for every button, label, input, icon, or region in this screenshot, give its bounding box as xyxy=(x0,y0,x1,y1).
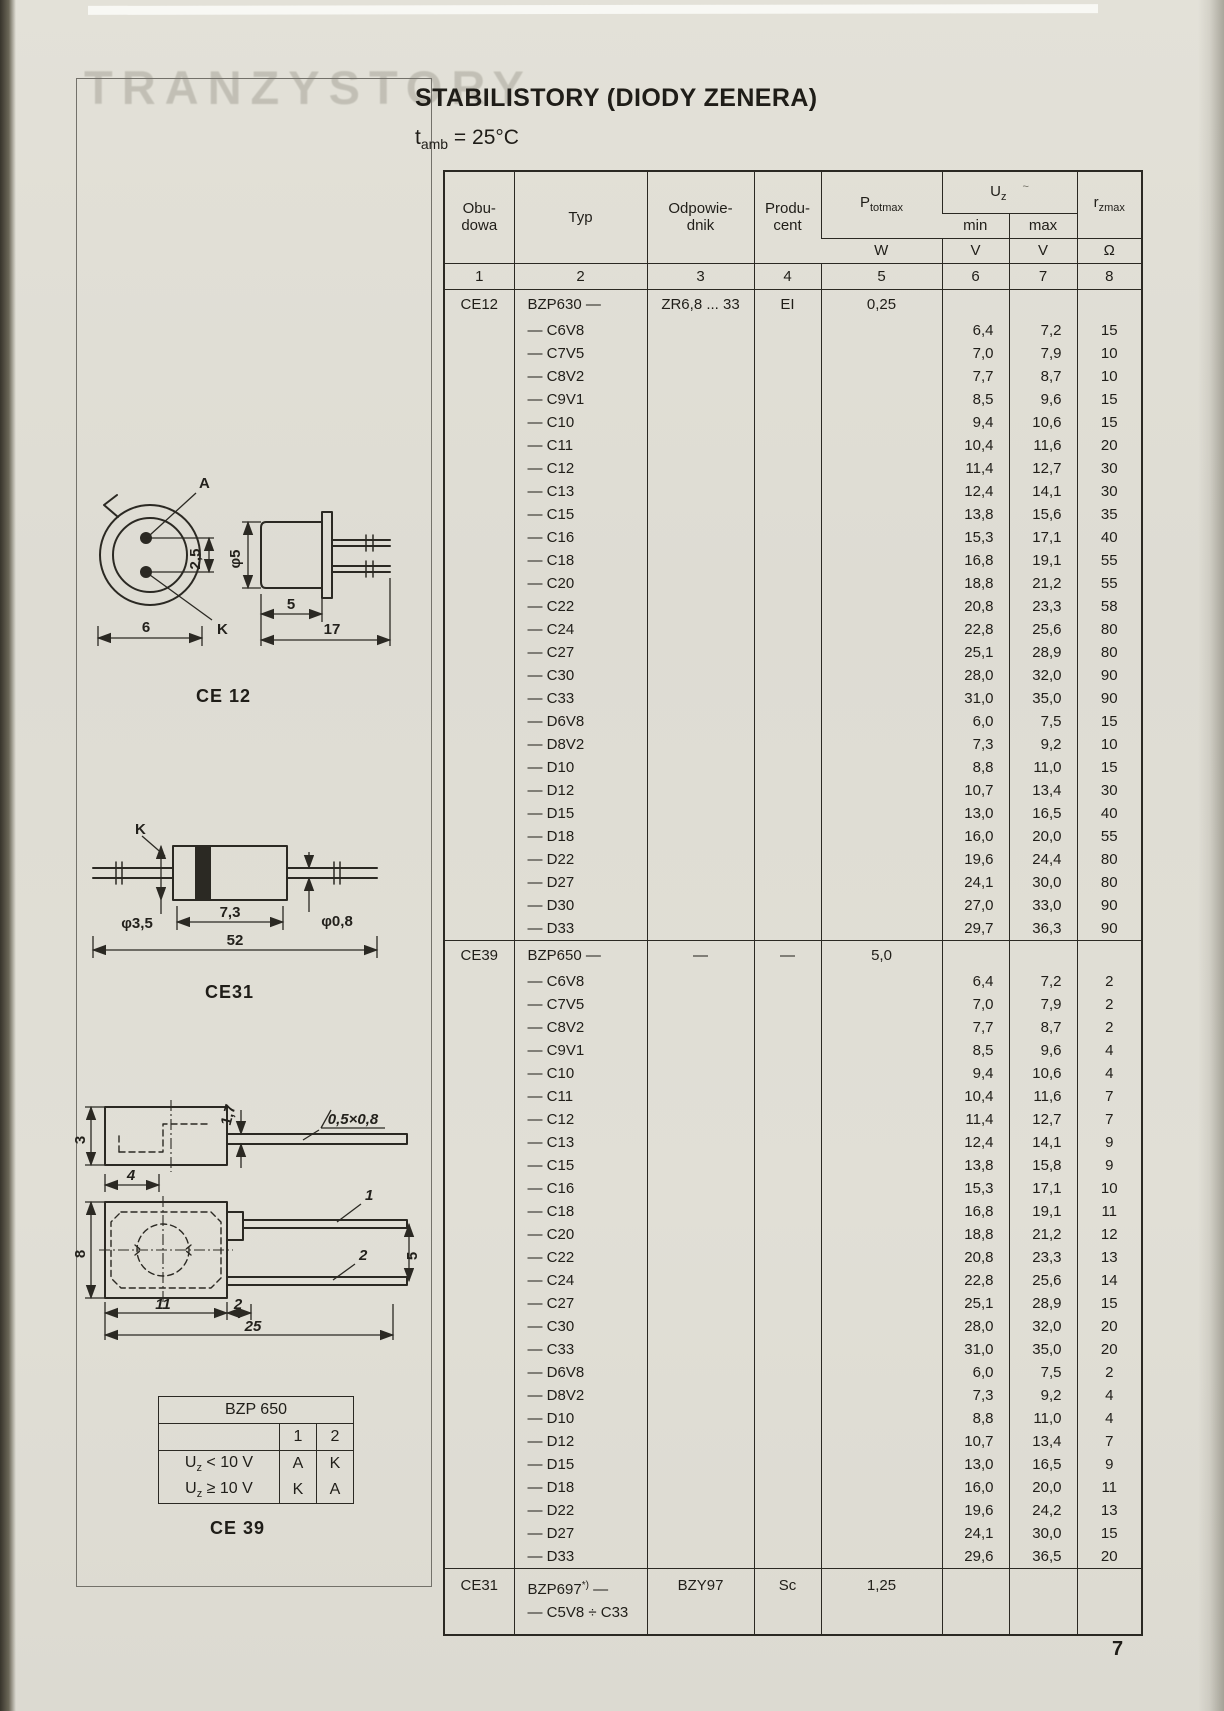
cell-uz-min: 7,7 xyxy=(942,365,1009,388)
cell-uz-max: 25,6 xyxy=(1009,618,1077,641)
cell-typ: — D12 xyxy=(514,1430,647,1453)
table-row: — D18 16,0 20,0 55 xyxy=(444,825,1142,848)
cell-obudowa xyxy=(444,993,514,1016)
cell-uz-max: 8,7 xyxy=(1009,365,1077,388)
cell-ptotmax xyxy=(821,641,942,664)
cell-rzmax: 80 xyxy=(1077,618,1142,641)
table-row: — C16 15,3 17,1 40 xyxy=(444,526,1142,549)
cell-odpowiednik xyxy=(647,1453,754,1476)
table-row: — C20 18,8 21,2 12 xyxy=(444,1223,1142,1246)
cell-odpowiednik xyxy=(647,1430,754,1453)
unit-volt-max: V xyxy=(1009,238,1077,263)
cell-rzmax: 40 xyxy=(1077,802,1142,825)
cell-typ: — D27 xyxy=(514,871,647,894)
ce12-c-rows: — C6V8 6,4 7,2 15 — C7V5 7,0 7,9 xyxy=(444,319,1142,710)
cell-odpowiednik xyxy=(647,825,754,848)
cell-rzmax: 80 xyxy=(1077,641,1142,664)
cell-uz-max: 11,6 xyxy=(1009,434,1077,457)
cell-rzmax xyxy=(1077,289,1142,319)
cell-ptotmax: 5,0 xyxy=(821,940,942,970)
cell-odpowiednik xyxy=(647,917,754,941)
cell-uz-min: 6,0 xyxy=(942,710,1009,733)
cell-ptotmax xyxy=(821,572,942,595)
cell-uz-min: 29,6 xyxy=(942,1545,1009,1569)
col-number-8: 8 xyxy=(1077,263,1142,289)
cell-uz-min: 19,6 xyxy=(942,848,1009,871)
cell-ptotmax xyxy=(821,457,942,480)
uz-condition: < 10 V xyxy=(202,1454,253,1471)
page-number: 7 xyxy=(1112,1638,1123,1661)
cell-producent xyxy=(754,388,821,411)
table-row: — C15 13,8 15,6 35 xyxy=(444,503,1142,526)
cell-obudowa xyxy=(444,595,514,618)
ce39-package-drawing: 3 1,7 0,5×0,8 4 8 1 2 xyxy=(75,1052,420,1352)
cell-ptotmax xyxy=(821,365,942,388)
cell-producent xyxy=(754,1131,821,1154)
cell-producent xyxy=(754,572,821,595)
cell-odpowiednik xyxy=(647,848,754,871)
cell-odpowiednik xyxy=(647,894,754,917)
typ-line1: BZP697*) — xyxy=(528,1574,647,1601)
cell-uz-min: 13,8 xyxy=(942,503,1009,526)
cell-obudowa xyxy=(444,1407,514,1430)
cell-rzmax: 30 xyxy=(1077,779,1142,802)
cell-rzmax: 10 xyxy=(1077,733,1142,756)
cell-ptotmax xyxy=(821,1131,942,1154)
table-row: — C24 22,8 25,6 14 xyxy=(444,1269,1142,1292)
table-row: — D27 24,1 30,0 80 xyxy=(444,871,1142,894)
cell-ptotmax xyxy=(821,1085,942,1108)
cell-odpowiednik xyxy=(647,1223,754,1246)
cell-typ: — C7V5 xyxy=(514,993,647,1016)
cell-uz-min: 6,4 xyxy=(942,970,1009,993)
cell-rzmax: 4 xyxy=(1077,1384,1142,1407)
cell-odpowiednik xyxy=(647,1039,754,1062)
cell-typ: — C12 xyxy=(514,1108,647,1131)
cell-typ: — C6V8 xyxy=(514,970,647,993)
ce12-width-dim: 6 xyxy=(142,619,150,636)
cell-uz-min: 25,1 xyxy=(942,1292,1009,1315)
cell-ptotmax xyxy=(821,319,942,342)
cell-producent xyxy=(754,1016,821,1039)
cell-producent xyxy=(754,641,821,664)
cell-typ: — C30 xyxy=(514,1315,647,1338)
ce12-caption: CE 12 xyxy=(196,686,251,707)
table-row: — D33 29,6 36,5 20 xyxy=(444,1545,1142,1569)
cell-uz-min: 19,6 xyxy=(942,1499,1009,1522)
cell-producent: EI xyxy=(754,289,821,319)
ce31-package-drawing: K φ3,5 7,3 φ0,8 52 xyxy=(85,818,385,968)
cell-typ: — C13 xyxy=(514,480,647,503)
cell-ptotmax xyxy=(821,1200,942,1223)
cell-odpowiednik xyxy=(647,365,754,388)
cell-uz-min: 6,0 xyxy=(942,1361,1009,1384)
cell-uz-min: 8,8 xyxy=(942,756,1009,779)
table-row: — C10 9,4 10,6 15 xyxy=(444,411,1142,434)
cell-producent xyxy=(754,1269,821,1292)
cell-rzmax: 2 xyxy=(1077,970,1142,993)
cell-producent: — xyxy=(754,940,821,970)
cell-typ: — D22 xyxy=(514,848,647,871)
cell-rzmax: 11 xyxy=(1077,1476,1142,1499)
cell-odpowiednik xyxy=(647,1499,754,1522)
cell-ptotmax xyxy=(821,825,942,848)
cell-uz-max: 32,0 xyxy=(1009,664,1077,687)
table-row: — D33 29,7 36,3 90 xyxy=(444,917,1142,941)
cell-ptotmax xyxy=(821,1062,942,1085)
cell-producent xyxy=(754,970,821,993)
cell-producent xyxy=(754,733,821,756)
bzp650-polarity-table: BZP 650 1 2 Uz < 10 V A K Uz ≥ 10 V K A xyxy=(158,1396,354,1504)
table-row: — D15 13,0 16,5 9 xyxy=(444,1453,1142,1476)
table-row: CE12 BZP630 — ZR6,8 ... 33 EI 0,25 xyxy=(444,289,1142,319)
cell-rzmax: 11 xyxy=(1077,1200,1142,1223)
uz-sub: z xyxy=(1001,191,1007,203)
cell-uz-min: 12,4 xyxy=(942,1131,1009,1154)
table-row: — D12 10,7 13,4 7 xyxy=(444,1430,1142,1453)
cell-rzmax: 55 xyxy=(1077,549,1142,572)
cell-typ: — C22 xyxy=(514,595,647,618)
ce39-width-dim: 4 xyxy=(126,1167,136,1184)
cell-uz-max: 17,1 xyxy=(1009,1177,1077,1200)
cell-rzmax: 13 xyxy=(1077,1246,1142,1269)
cell-rzmax: 10 xyxy=(1077,1177,1142,1200)
cell-uz-min: 29,7 xyxy=(942,917,1009,941)
table-row: — C6V8 6,4 7,2 15 xyxy=(444,319,1142,342)
ce31-caption: CE31 xyxy=(205,982,254,1003)
col-number-7: 7 xyxy=(1009,263,1077,289)
cell-rzmax: 7 xyxy=(1077,1085,1142,1108)
cell-producent xyxy=(754,1223,821,1246)
cell-ptotmax xyxy=(821,1269,942,1292)
cell-uz-max: 7,2 xyxy=(1009,970,1077,993)
cell-obudowa xyxy=(444,1315,514,1338)
cell-typ: — D10 xyxy=(514,756,647,779)
table-row: — D15 13,0 16,5 40 xyxy=(444,802,1142,825)
cell-odpowiednik xyxy=(647,871,754,894)
col-header-obudowa: Obu- dowa xyxy=(444,171,514,263)
cell-typ: — D8V2 xyxy=(514,1384,647,1407)
ce39-body-length-dim: 11 xyxy=(155,1296,171,1313)
cell-uz-max: 16,5 xyxy=(1009,802,1077,825)
cell-rzmax: 9 xyxy=(1077,1154,1142,1177)
cell-producent xyxy=(754,1430,821,1453)
table-row: — C27 25,1 28,9 80 xyxy=(444,641,1142,664)
table-row: — D8V2 7,3 9,2 4 xyxy=(444,1384,1142,1407)
polarity-row1-pin1: A xyxy=(280,1451,317,1478)
cell-uz-min: 16,0 xyxy=(942,1476,1009,1499)
table-row: — C18 16,8 19,1 55 xyxy=(444,549,1142,572)
cell-odpowiednik xyxy=(647,1108,754,1131)
polarity-empty-cell xyxy=(159,1424,280,1451)
cell-typ: — C11 xyxy=(514,1085,647,1108)
cell-typ: — C11 xyxy=(514,434,647,457)
cell-odpowiednik: ZR6,8 ... 33 xyxy=(647,289,754,319)
cell-ptotmax xyxy=(821,1545,942,1569)
cell-rzmax: 80 xyxy=(1077,871,1142,894)
cell-producent xyxy=(754,549,821,572)
cell-obudowa: CE31 xyxy=(444,1568,514,1635)
cell-rzmax: 14 xyxy=(1077,1269,1142,1292)
ptot-sub: totmax xyxy=(870,202,903,214)
table-row: — C33 31,0 35,0 90 xyxy=(444,687,1142,710)
cell-producent xyxy=(754,871,821,894)
table-row: — D27 24,1 30,0 15 xyxy=(444,1522,1142,1545)
cell-uz-max: 32,0 xyxy=(1009,1315,1077,1338)
cell-odpowiednik xyxy=(647,687,754,710)
table-row: — C18 16,8 19,1 11 xyxy=(444,1200,1142,1223)
cell-uz-min: 11,4 xyxy=(942,457,1009,480)
cell-uz-max: 15,8 xyxy=(1009,1154,1077,1177)
uz-tilde-mark: ~ xyxy=(1022,181,1028,193)
cell-odpowiednik xyxy=(647,1154,754,1177)
table-row: — C11 10,4 11,6 7 xyxy=(444,1085,1142,1108)
cell-uz-min: 8,8 xyxy=(942,1407,1009,1430)
cell-uz-max: 12,7 xyxy=(1009,457,1077,480)
cell-uz-max: 12,7 xyxy=(1009,1108,1077,1131)
cell-typ: — D6V8 xyxy=(514,710,647,733)
cell-odpowiednik xyxy=(647,1384,754,1407)
table-row: CE31 BZP697*) —— C5V8 ÷ C33 BZY97 Sc 1,2… xyxy=(444,1568,1142,1635)
col-header-uz-min: min xyxy=(942,213,1009,238)
polarity-col-pin2: 2 xyxy=(317,1424,354,1451)
cell-obudowa xyxy=(444,365,514,388)
cell-rzmax: 7 xyxy=(1077,1430,1142,1453)
cell-odpowiednik xyxy=(647,503,754,526)
cell-ptotmax xyxy=(821,1223,942,1246)
cell-producent xyxy=(754,779,821,802)
cell-producent xyxy=(754,1315,821,1338)
cell-obudowa xyxy=(444,1430,514,1453)
cell-typ: — C8V2 xyxy=(514,1016,647,1039)
cell-uz-max: 36,5 xyxy=(1009,1545,1077,1569)
cell-producent xyxy=(754,434,821,457)
cell-obudowa xyxy=(444,1361,514,1384)
ce12-d-rows: — D6V8 6,0 7,5 15 — D8V2 7,3 9,2 xyxy=(444,710,1142,941)
cell-uz-max: 20,0 xyxy=(1009,825,1077,848)
cell-rzmax: 30 xyxy=(1077,480,1142,503)
table-row: — C22 20,8 23,3 58 xyxy=(444,595,1142,618)
cell-ptotmax xyxy=(821,1476,942,1499)
cell-obudowa xyxy=(444,1338,514,1361)
cell-typ: — C30 xyxy=(514,664,647,687)
cell-uz-min: 16,8 xyxy=(942,1200,1009,1223)
producent-line2: cent xyxy=(773,217,801,234)
cell-odpowiednik xyxy=(647,595,754,618)
cell-uz-max: 17,1 xyxy=(1009,526,1077,549)
cell-producent xyxy=(754,1039,821,1062)
cell-uz-min: 9,4 xyxy=(942,411,1009,434)
cell-producent xyxy=(754,687,821,710)
cell-obudowa xyxy=(444,480,514,503)
cell-obudowa xyxy=(444,664,514,687)
ce39-body-height-dim: 8 xyxy=(75,1250,89,1258)
cell-uz-min: 13,8 xyxy=(942,1154,1009,1177)
cell-producent xyxy=(754,411,821,434)
cell-obudowa xyxy=(444,733,514,756)
col-number-6: 6 xyxy=(942,263,1009,289)
cell-typ: — C16 xyxy=(514,526,647,549)
cell-ptotmax xyxy=(821,1407,942,1430)
table-row: — C33 31,0 35,0 20 xyxy=(444,1338,1142,1361)
cell-uz-max: 10,6 xyxy=(1009,411,1077,434)
cell-typ: — D18 xyxy=(514,825,647,848)
cell-typ: — C10 xyxy=(514,1062,647,1085)
cell-ptotmax xyxy=(821,1384,942,1407)
table-row: — C13 12,4 14,1 30 xyxy=(444,480,1142,503)
table-row: — D8V2 7,3 9,2 10 xyxy=(444,733,1142,756)
cell-obudowa xyxy=(444,1246,514,1269)
ce12-package-drawing: A K 6 2,5 φ5 5 17 xyxy=(78,462,393,682)
cell-ptotmax xyxy=(821,388,942,411)
cell-producent xyxy=(754,756,821,779)
cell-producent xyxy=(754,917,821,941)
ambient-temperature-note: tamb = 25°C xyxy=(415,126,519,152)
cell-uz-max: 20,0 xyxy=(1009,1476,1077,1499)
cell-typ: — D15 xyxy=(514,1453,647,1476)
cell-rzmax: 4 xyxy=(1077,1039,1142,1062)
cell-rzmax: 20 xyxy=(1077,1545,1142,1569)
cell-odpowiednik: — xyxy=(647,940,754,970)
table-row: — C22 20,8 23,3 13 xyxy=(444,1246,1142,1269)
cell-typ: — D33 xyxy=(514,1545,647,1569)
unit-watt: W xyxy=(821,238,942,263)
cell-uz-max: 23,3 xyxy=(1009,1246,1077,1269)
cell-ptotmax xyxy=(821,480,942,503)
cell-obudowa xyxy=(444,319,514,342)
cell-uz-min: 18,8 xyxy=(942,572,1009,595)
cell-odpowiednik xyxy=(647,319,754,342)
cell-typ: — C33 xyxy=(514,1338,647,1361)
cell-obudowa xyxy=(444,1200,514,1223)
table-row: — C20 18,8 21,2 55 xyxy=(444,572,1142,595)
cell-odpowiednik xyxy=(647,1062,754,1085)
cell-uz-max: 9,2 xyxy=(1009,1384,1077,1407)
ce31-body-dia-dim: φ3,5 xyxy=(121,915,153,932)
cell-ptotmax xyxy=(821,756,942,779)
cell-ptotmax xyxy=(821,664,942,687)
cell-uz-max: 24,2 xyxy=(1009,1499,1077,1522)
cell-uz-max: 14,1 xyxy=(1009,480,1077,503)
cell-rzmax: 58 xyxy=(1077,595,1142,618)
col-number-2: 2 xyxy=(514,263,647,289)
cell-rzmax: 90 xyxy=(1077,687,1142,710)
cell-uz-max: 28,9 xyxy=(1009,641,1077,664)
cell-rzmax: 9 xyxy=(1077,1453,1142,1476)
book-spine-shadow xyxy=(0,0,16,1711)
cell-uz-max: 10,6 xyxy=(1009,1062,1077,1085)
cell-obudowa xyxy=(444,1177,514,1200)
cell-rzmax: 15 xyxy=(1077,319,1142,342)
cell-rzmax: 4 xyxy=(1077,1062,1142,1085)
cell-ptotmax xyxy=(821,710,942,733)
table-row: — C24 22,8 25,6 80 xyxy=(444,618,1142,641)
cell-uz-min xyxy=(942,289,1009,319)
table-row: — C16 15,3 17,1 10 xyxy=(444,1177,1142,1200)
cell-rzmax: 40 xyxy=(1077,526,1142,549)
cell-uz-min: 10,4 xyxy=(942,434,1009,457)
ce12-cathode-label: K xyxy=(217,621,228,638)
cell-uz-max: 11,0 xyxy=(1009,756,1077,779)
cell-uz-min: 6,4 xyxy=(942,319,1009,342)
cell-typ: — C20 xyxy=(514,1223,647,1246)
cell-uz-min: 18,8 xyxy=(942,1223,1009,1246)
cell-producent xyxy=(754,480,821,503)
cell-odpowiednik: BZY97 xyxy=(647,1568,754,1635)
table-row: — C8V2 7,7 8,7 10 xyxy=(444,365,1142,388)
table-row: — C6V8 6,4 7,2 2 xyxy=(444,970,1142,993)
cell-producent xyxy=(754,993,821,1016)
ce12-body-length-dim: 5 xyxy=(287,596,295,613)
cell-typ: BZP650 — xyxy=(514,940,647,970)
cell-typ: — C13 xyxy=(514,1131,647,1154)
cell-odpowiednik xyxy=(647,733,754,756)
cell-obudowa xyxy=(444,549,514,572)
ce39-lead-pitch-dim: 5 xyxy=(404,1252,420,1260)
cell-rzmax: 4 xyxy=(1077,1407,1142,1430)
cell-uz-max: 8,7 xyxy=(1009,1016,1077,1039)
table-row: — D10 8,8 11,0 15 xyxy=(444,756,1142,779)
cell-ptotmax xyxy=(821,917,942,941)
ce39-total-length-dim: 25 xyxy=(244,1318,262,1335)
ce39-pin1-label: 1 xyxy=(365,1187,373,1204)
cell-obudowa xyxy=(444,917,514,941)
cell-producent xyxy=(754,526,821,549)
cell-uz-max: 30,0 xyxy=(1009,1522,1077,1545)
cell-ptotmax xyxy=(821,687,942,710)
cell-uz-min: 11,4 xyxy=(942,1108,1009,1131)
obudowa-line2: dowa xyxy=(461,217,497,234)
cell-ptotmax xyxy=(821,1430,942,1453)
cell-obudowa: CE39 xyxy=(444,940,514,970)
cell-odpowiednik xyxy=(647,388,754,411)
cell-obudowa xyxy=(444,848,514,871)
cell-producent xyxy=(754,664,821,687)
cell-producent xyxy=(754,1154,821,1177)
cell-obudowa xyxy=(444,526,514,549)
cell-obudowa xyxy=(444,434,514,457)
ce39-d-rows: — D6V8 6,0 7,5 2 — D8V2 7,3 9,2 xyxy=(444,1361,1142,1569)
cell-obudowa xyxy=(444,411,514,434)
cell-producent xyxy=(754,825,821,848)
uz-base: U xyxy=(990,183,1001,200)
rz-sub: zmax xyxy=(1099,202,1125,214)
cell-odpowiednik xyxy=(647,1522,754,1545)
table-row: — D22 19,6 24,2 13 xyxy=(444,1499,1142,1522)
cell-uz-max: 33,0 xyxy=(1009,894,1077,917)
table-row: — C15 13,8 15,8 9 xyxy=(444,1154,1142,1177)
cell-typ: — C24 xyxy=(514,618,647,641)
table-row: — C13 12,4 14,1 9 xyxy=(444,1131,1142,1154)
section-ce12-header: CE12 BZP630 — ZR6,8 ... 33 EI 0,25 xyxy=(444,289,1142,319)
cell-uz-max: 9,2 xyxy=(1009,733,1077,756)
cell-uz-max: 16,5 xyxy=(1009,1453,1077,1476)
cell-odpowiednik xyxy=(647,549,754,572)
cell-producent xyxy=(754,503,821,526)
cell-uz-min: 15,3 xyxy=(942,526,1009,549)
ce12-anode-label: A xyxy=(199,475,210,492)
ce39-caption: CE 39 xyxy=(210,1518,265,1539)
cell-producent xyxy=(754,1361,821,1384)
cell-obudowa xyxy=(444,641,514,664)
col-header-uz: Uz~ xyxy=(942,171,1077,213)
cell-obudowa xyxy=(444,1545,514,1569)
ce39-c-rows: — C6V8 6,4 7,2 2 — C7V5 7,0 7,9 xyxy=(444,970,1142,1361)
cell-uz-max: 7,9 xyxy=(1009,993,1077,1016)
polarity-row1-pin2: K xyxy=(317,1451,354,1478)
uz-base: U xyxy=(185,1454,197,1471)
cell-typ: — D18 xyxy=(514,1476,647,1499)
